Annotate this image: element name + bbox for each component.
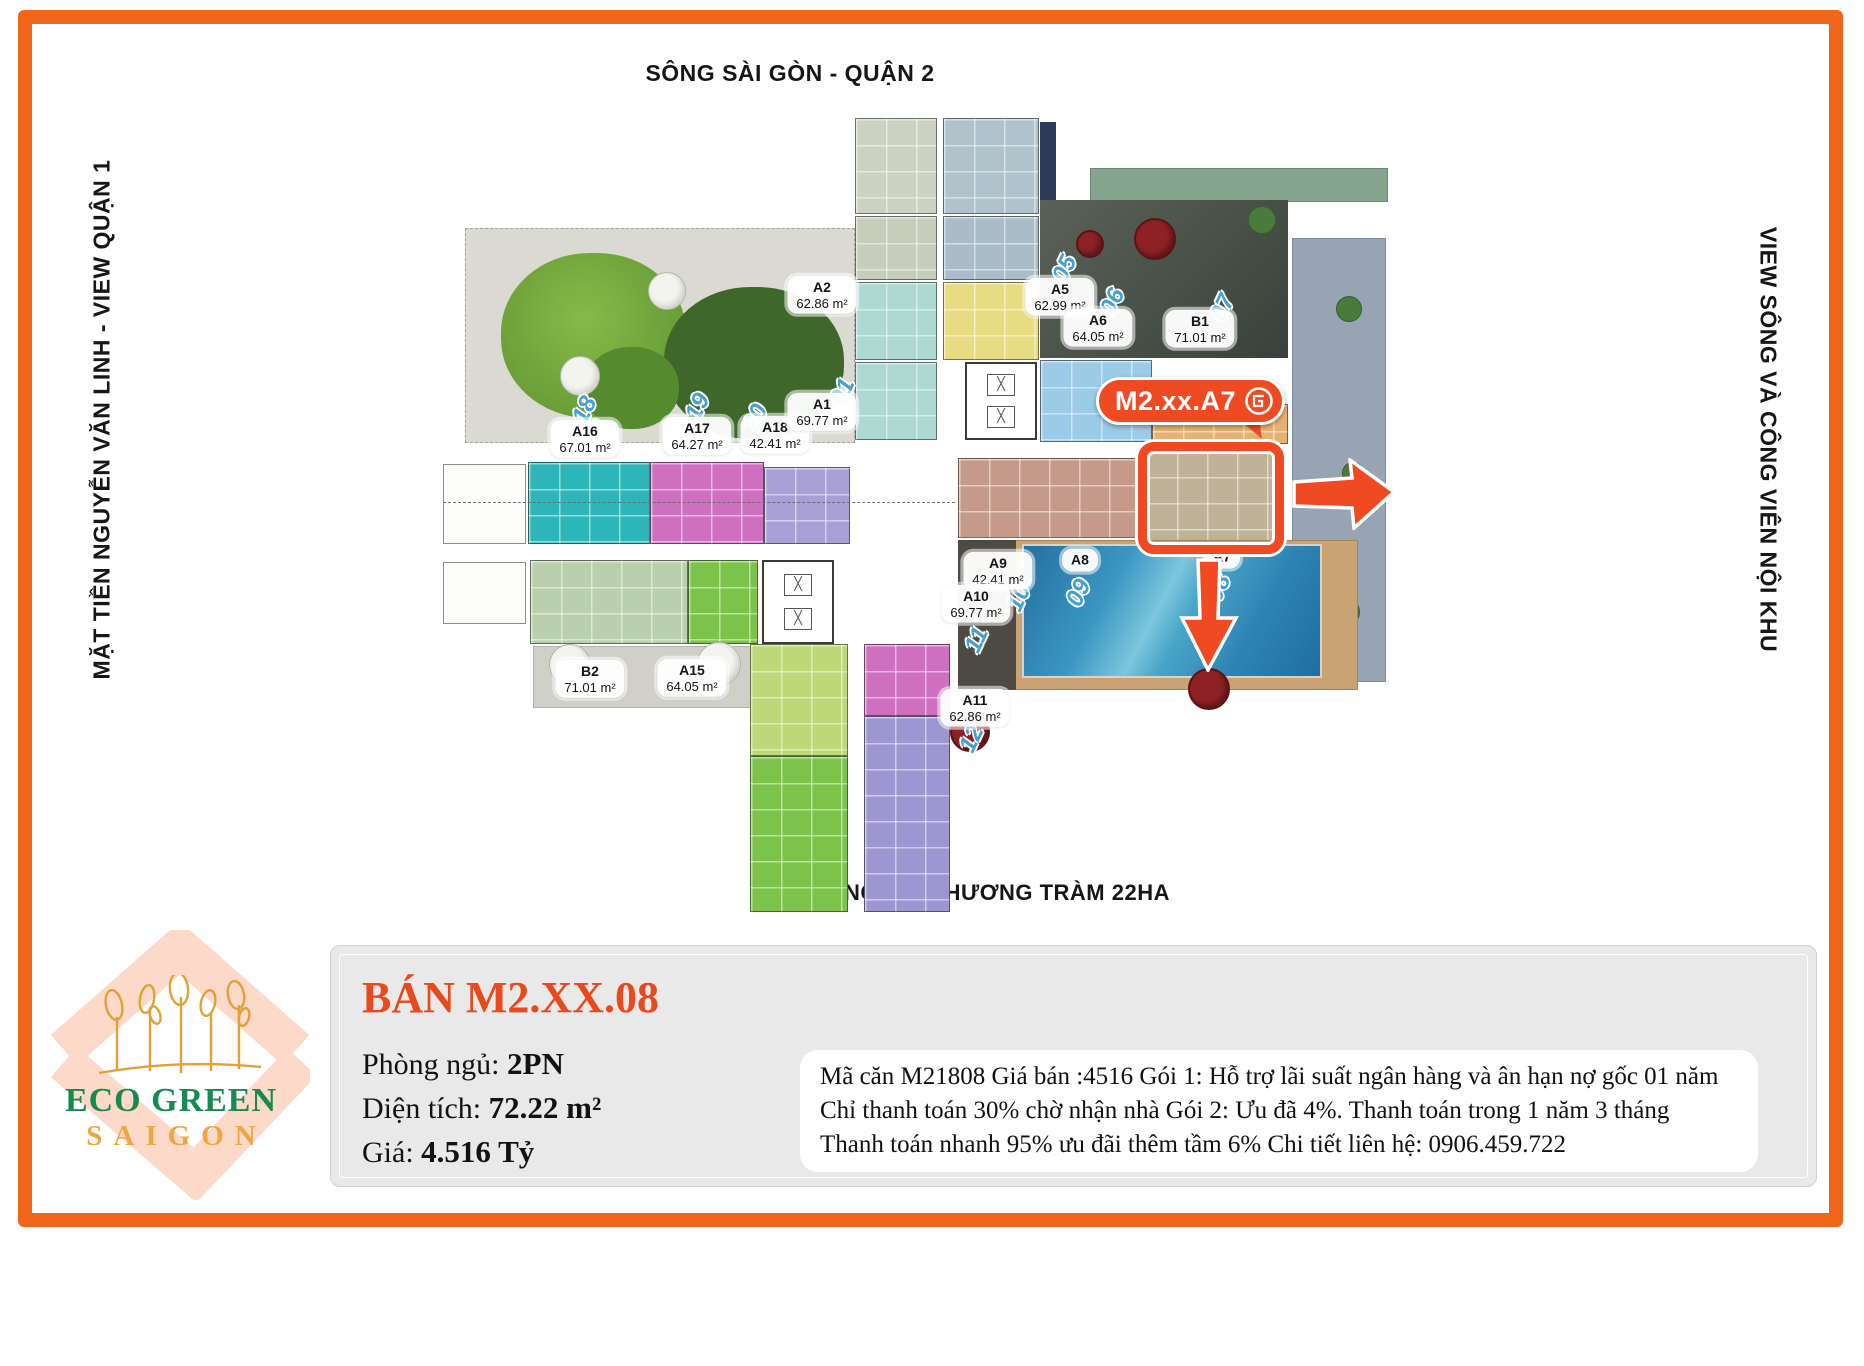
- highlighted-unit-badge[interactable]: M2.xx.A7: [1096, 377, 1285, 425]
- tree-icon: [1336, 296, 1362, 322]
- arrow-right-icon: [1292, 458, 1396, 530]
- area-row: Diện tích: 72.22 m²: [362, 1090, 601, 1126]
- arrow-down-icon: [1178, 558, 1240, 672]
- unit-block-green: [688, 560, 758, 644]
- garden-shrub: [584, 347, 679, 429]
- red-umbrella-icon: [1076, 230, 1104, 258]
- unit-block-purple: [864, 716, 950, 912]
- unit-label-A6: A664.05 m²: [1063, 309, 1132, 347]
- highlighted-unit-outline[interactable]: [1138, 442, 1284, 554]
- unit-block-pink: [650, 462, 764, 544]
- eco-green-badge-icon: [1244, 386, 1274, 416]
- unit-label-A2: A262.86 m²: [787, 276, 856, 314]
- elevator-core: ╳╳: [965, 362, 1037, 440]
- unit-label-A17: A1764.27 m²: [662, 417, 731, 455]
- umbrella-icon: [648, 272, 686, 310]
- price-value: 4.516 Tỷ: [421, 1134, 534, 1169]
- listing-title: BÁN M2.XX.08: [362, 972, 659, 1023]
- unit-label-B1: B171.01 m²: [1165, 310, 1234, 348]
- listing-description: Mã căn M21808 Giá bán :4516 Gói 1: Hỗ tr…: [800, 1050, 1758, 1172]
- red-umbrella-icon: [1188, 668, 1230, 710]
- area-label: Diện tích:: [362, 1092, 481, 1125]
- bedrooms-label: Phòng ngủ:: [362, 1048, 500, 1081]
- unit-outline: [443, 562, 526, 624]
- bedrooms-row: Phòng ngủ: 2PN: [362, 1046, 564, 1082]
- tree-icon: [1248, 206, 1276, 234]
- unit-block-lightgreen: [530, 560, 688, 644]
- roof-terrace: [1090, 168, 1388, 202]
- corridor-dashed-line: [443, 502, 955, 503]
- unit-label-A1: A169.77 m²: [787, 393, 856, 431]
- unit-label-B2: B271.01 m²: [555, 660, 624, 698]
- logo-text-eco-green: ECO GREEN: [40, 1082, 302, 1120]
- unit-block-salmon: [958, 458, 1140, 538]
- unit-block-bluegray: [943, 216, 1039, 280]
- unit-block-purple: [764, 467, 850, 544]
- unit-label-A8: A8: [1062, 549, 1098, 572]
- unit-block-teal: [855, 362, 937, 440]
- area-value: 72.22 m²: [489, 1090, 602, 1125]
- caption-north-river: SÔNG SÀI GÒN - QUẬN 2: [470, 60, 1110, 87]
- unit-block-bluegray: [943, 118, 1039, 214]
- red-umbrella-icon: [1134, 218, 1176, 260]
- unit-block-pink: [864, 644, 950, 716]
- unit-block-green: [750, 756, 848, 912]
- unit-block-sage: [855, 216, 937, 280]
- price-label: Giá:: [362, 1136, 414, 1169]
- unit-label-A16: A1667.01 m²: [550, 420, 619, 458]
- unit-label-A11: A1162.86 m²: [940, 689, 1009, 727]
- bedrooms-value: 2PN: [507, 1046, 564, 1081]
- price-row: Giá: 4.516 Tỷ: [362, 1134, 534, 1170]
- logo-text-saigon: SAIGON: [40, 1120, 302, 1153]
- badge-label: M2.xx.A7: [1115, 386, 1236, 417]
- umbrella-icon: [560, 356, 600, 396]
- unit-block-lime: [750, 644, 848, 756]
- unit-label-A10: A1069.77 m²: [941, 585, 1010, 623]
- unit-block-sage: [855, 118, 937, 214]
- unit-label-A15: A1564.05 m²: [657, 659, 726, 697]
- logo-trees-icon: [95, 975, 265, 1083]
- elevator-core: ╳╳: [762, 560, 834, 644]
- caption-east-view: VIEW SÔNG VÀ CÔNG VIÊN NỘI KHU: [1755, 120, 1782, 760]
- unit-outline: [443, 464, 526, 544]
- unit-block-cyan: [528, 462, 650, 544]
- unit-block-teal: [855, 282, 937, 360]
- caption-west-street: MẶT TIỀN NGUYỄN VĂN LINH - VIEW QUẬN 1: [89, 100, 116, 740]
